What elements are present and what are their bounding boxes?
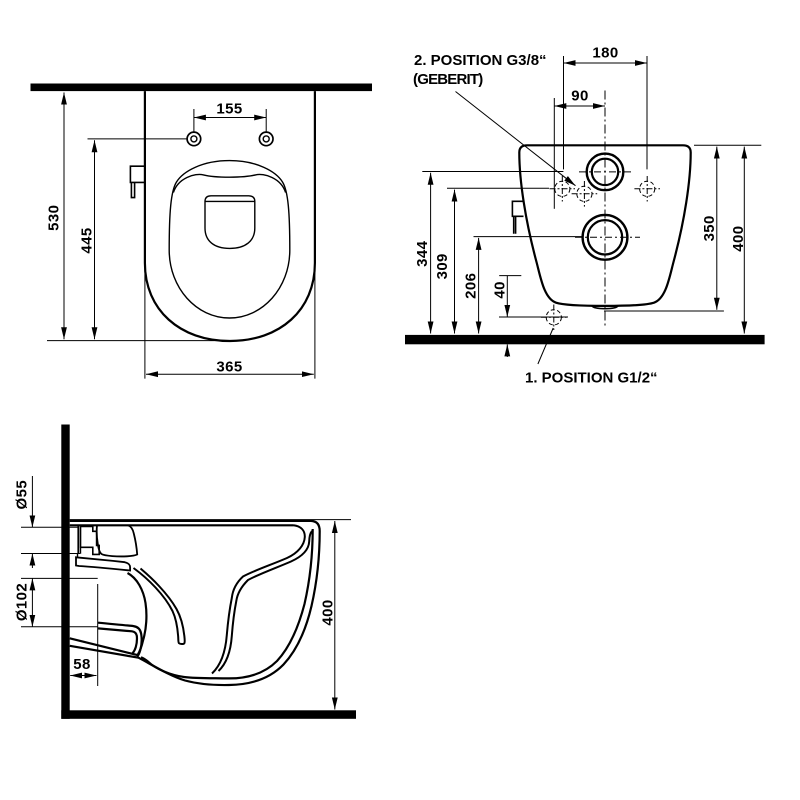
- svg-text:2. POSITION G3/8“: 2. POSITION G3/8“: [414, 52, 547, 69]
- svg-text:40: 40: [492, 281, 509, 299]
- svg-text:309: 309: [434, 253, 451, 279]
- svg-text:400: 400: [320, 599, 337, 625]
- svg-text:58: 58: [73, 656, 91, 673]
- svg-text:Ø55: Ø55: [14, 480, 31, 510]
- svg-text:Ø102: Ø102: [13, 583, 30, 621]
- svg-text:350: 350: [701, 215, 718, 241]
- svg-text:(GEBERIT): (GEBERIT): [413, 71, 483, 88]
- svg-text:400: 400: [730, 225, 747, 251]
- svg-text:1. POSITION G1/2“: 1. POSITION G1/2“: [525, 370, 658, 387]
- svg-text:365: 365: [216, 359, 242, 376]
- svg-text:180: 180: [592, 45, 618, 62]
- svg-text:445: 445: [78, 227, 95, 253]
- svg-text:530: 530: [45, 205, 62, 231]
- svg-text:90: 90: [571, 88, 589, 105]
- svg-text:155: 155: [216, 101, 242, 118]
- svg-text:206: 206: [462, 273, 479, 299]
- svg-text:344: 344: [414, 240, 431, 266]
